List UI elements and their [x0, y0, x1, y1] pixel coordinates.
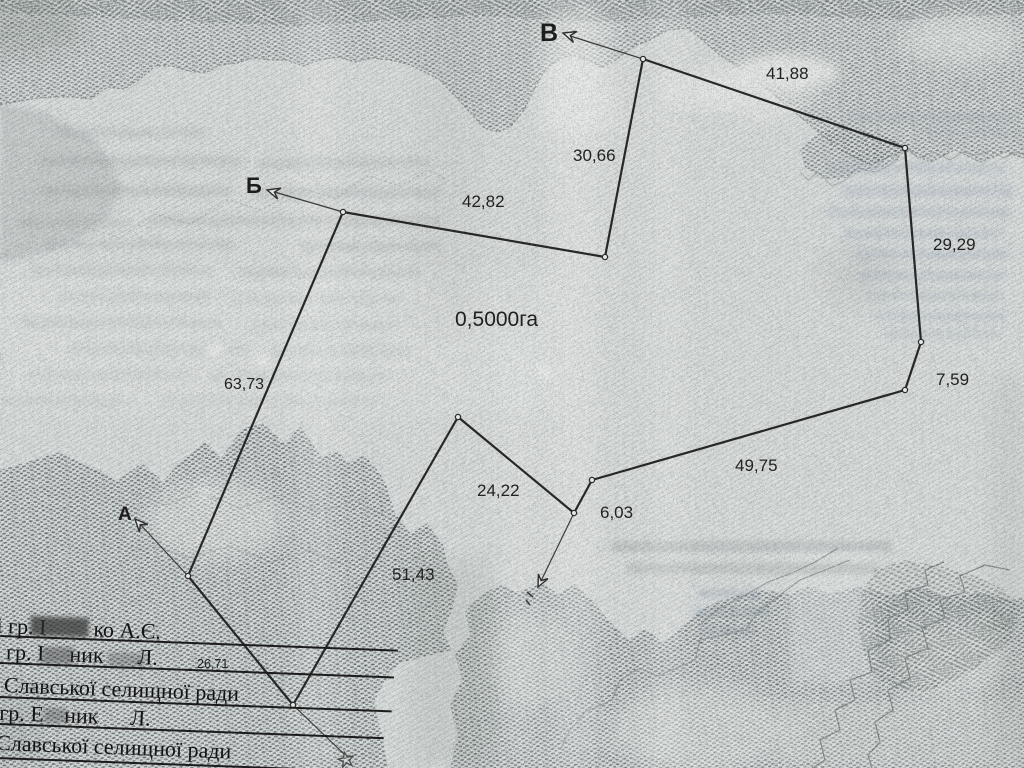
svg-text:ко А.Є.: ко А.Є. — [93, 616, 161, 643]
svg-text:ник: ник — [64, 702, 99, 728]
svg-text:ник: ник — [69, 642, 104, 668]
svg-text:26,71: 26,71 — [197, 657, 228, 671]
svg-text:29,29: 29,29 — [933, 235, 976, 254]
svg-text:63,73: 63,73 — [224, 376, 264, 393]
svg-text:А: А — [118, 504, 132, 525]
svg-text:гр. Е: гр. Е — [0, 700, 44, 727]
svg-text:Б: Б — [246, 173, 262, 198]
svg-text:0,5000га: 0,5000га — [455, 308, 538, 331]
svg-text:51,43: 51,43 — [392, 565, 435, 584]
svg-text:41,88: 41,88 — [766, 64, 809, 83]
svg-text:В: В — [540, 19, 558, 47]
svg-text:6,03: 6,03 — [600, 503, 633, 522]
svg-text:24,22: 24,22 — [477, 481, 520, 500]
svg-text:Л.: Л. — [130, 705, 151, 731]
svg-text:30,66: 30,66 — [573, 146, 616, 165]
svg-text:і гр. І: і гр. І — [0, 639, 45, 666]
svg-text:42,82: 42,82 — [462, 192, 505, 211]
svg-text:49,75: 49,75 — [735, 456, 778, 475]
svg-text:7,59: 7,59 — [936, 370, 969, 389]
